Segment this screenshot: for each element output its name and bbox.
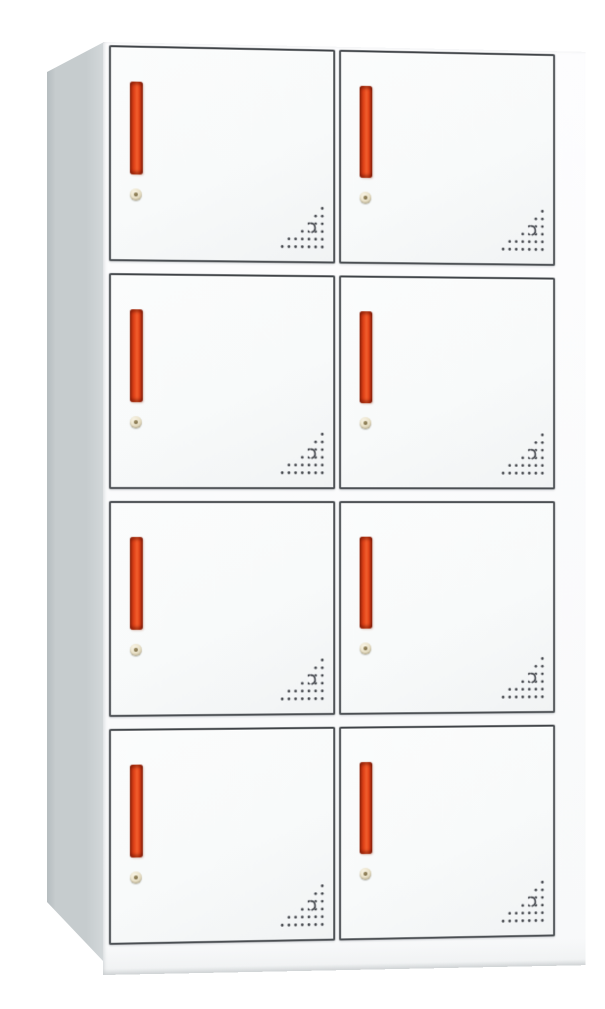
door-grid <box>109 45 555 945</box>
vent-perforation-icon <box>499 655 545 701</box>
door-handle-icon <box>360 311 373 403</box>
cabinet-side-panel <box>45 38 104 975</box>
vent-perforation-icon <box>499 431 545 476</box>
locker-door <box>109 273 335 489</box>
door-handle-icon <box>130 765 143 858</box>
keyhole-lock-icon <box>130 871 142 883</box>
vent-perforation-icon <box>278 431 325 477</box>
door-handle-icon <box>360 762 373 854</box>
keyhole-lock-icon <box>130 416 142 428</box>
door-handle-icon <box>130 82 143 175</box>
vent-perforation-icon <box>499 207 545 253</box>
door-handle-icon <box>360 86 373 178</box>
keyhole-lock-icon <box>360 417 372 429</box>
vent-perforation-icon <box>278 882 325 928</box>
locker-door <box>339 50 555 266</box>
keyhole-lock-icon <box>130 188 142 200</box>
locker-door <box>109 501 335 717</box>
door-handle-icon <box>130 309 143 402</box>
keyhole-lock-icon <box>130 644 142 656</box>
locker-door <box>339 275 555 489</box>
vent-perforation-icon <box>278 204 325 250</box>
keyhole-lock-icon <box>360 642 372 654</box>
locker-door <box>339 501 555 715</box>
cabinet-front-face <box>103 42 586 975</box>
keyhole-lock-icon <box>360 192 372 204</box>
vent-perforation-icon <box>499 879 545 925</box>
locker-door <box>109 45 335 263</box>
door-handle-icon <box>130 537 143 630</box>
locker-door <box>109 727 335 945</box>
vent-perforation-icon <box>278 657 325 703</box>
locker-door <box>339 725 555 941</box>
locker-cabinet-photo <box>0 0 605 1009</box>
door-handle-icon <box>360 537 373 629</box>
keyhole-lock-icon <box>360 868 372 880</box>
